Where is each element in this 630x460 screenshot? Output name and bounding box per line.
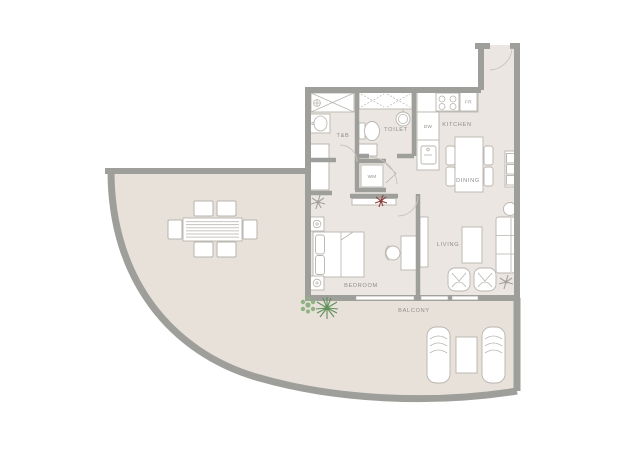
room-label-toilet: TOILET	[384, 127, 408, 133]
nightstand	[310, 217, 324, 231]
desk	[401, 236, 417, 270]
toilet-bowl	[359, 122, 380, 141]
coffee-table	[462, 227, 482, 263]
room-label-living: LIVING	[437, 242, 460, 248]
sofa	[496, 217, 515, 273]
floor-plan-drawing: T&B TOILET KITCHEN DINING LIVING BEDROOM…	[0, 0, 630, 460]
bed	[313, 232, 364, 277]
kitchen-sink	[421, 146, 436, 164]
room-label-tnb: T&B	[337, 133, 350, 139]
floor-plan: T&B TOILET KITCHEN DINING LIVING BEDROOM…	[0, 0, 630, 460]
bath-cabinet	[359, 92, 412, 109]
armchair	[448, 268, 470, 291]
tv-console	[420, 217, 428, 267]
appliance-label-dw: DW	[424, 124, 433, 129]
armchair	[474, 268, 496, 291]
nightstand	[310, 276, 324, 290]
room-label-bedroom: BEDROOM	[344, 283, 378, 289]
appliance-label-fr: FR	[465, 100, 472, 105]
appliance-label-wm: WM	[368, 174, 377, 179]
bedroom-cabinet	[352, 199, 396, 206]
balcony-side-table	[456, 337, 477, 373]
bathroom-sink	[310, 114, 330, 133]
room-label-dining: DINING	[456, 178, 480, 184]
room-label-balcony: BALCONY	[398, 308, 430, 314]
sun-lounger	[482, 327, 505, 383]
shower	[311, 93, 354, 112]
room-label-kitchen: KITCHEN	[442, 122, 471, 128]
wardrobe	[309, 144, 329, 190]
stove	[436, 93, 459, 111]
sun-lounger	[427, 327, 450, 383]
